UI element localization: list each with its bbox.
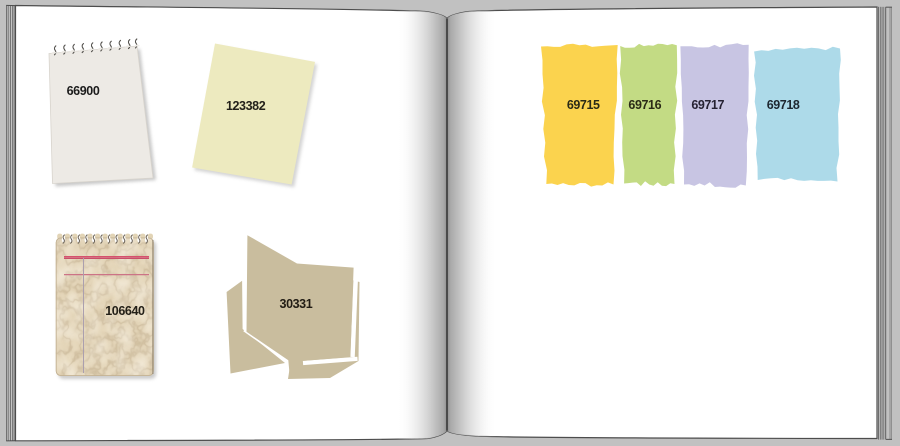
svg-text:69715: 69715 — [567, 98, 600, 112]
svg-text:69717: 69717 — [691, 98, 724, 112]
svg-text:69716: 69716 — [628, 98, 661, 112]
svg-text:66900: 66900 — [67, 84, 100, 98]
svg-text:123382: 123382 — [226, 99, 266, 113]
svg-text:106640: 106640 — [105, 304, 145, 318]
svg-text:30331: 30331 — [280, 297, 313, 311]
svg-text:69718: 69718 — [767, 98, 800, 112]
